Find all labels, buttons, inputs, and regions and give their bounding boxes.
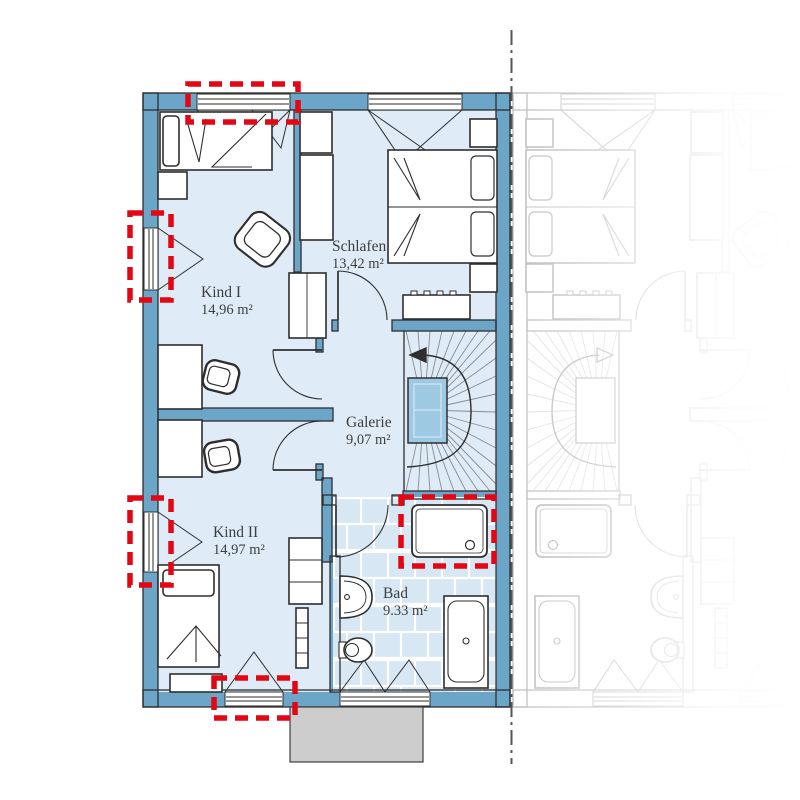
label-schlafen-area: 13,42 m² xyxy=(332,256,385,272)
floor-plan-svg: Kind I 14,96 m² Schlafen 13,42 m² Galeri… xyxy=(0,0,800,800)
label-bad-area: 9.33 m² xyxy=(383,603,428,619)
label-kind2-area: 14,97 m² xyxy=(213,542,266,558)
label-bad-name: Bad xyxy=(383,585,408,602)
floor-plan-page: Kind I 14,96 m² Schlafen 13,42 m² Galeri… xyxy=(0,0,800,800)
label-schlafen-name: Schlafen xyxy=(332,238,386,255)
label-kind2-name: Kind II xyxy=(213,524,258,541)
stair-void xyxy=(408,378,447,443)
label-kind1-area: 14,96 m² xyxy=(201,302,254,318)
label-galerie-name: Galerie xyxy=(346,414,392,431)
label-kind1-name: Kind I xyxy=(201,284,241,301)
terrace xyxy=(290,707,423,762)
label-galerie-area: 9,07 m² xyxy=(346,432,391,448)
fade-overlay xyxy=(511,0,800,800)
